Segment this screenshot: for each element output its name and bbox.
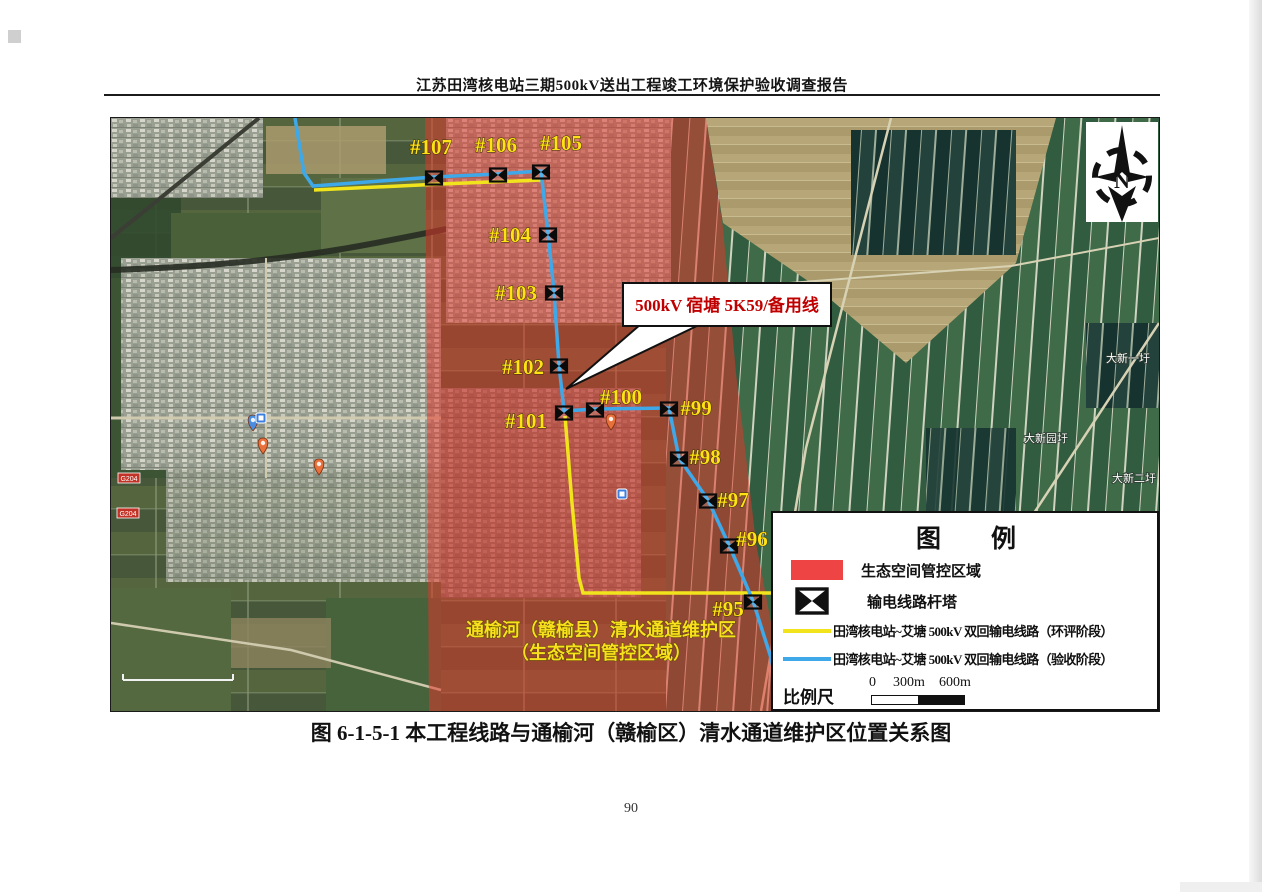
scan-artifact (8, 30, 21, 43)
figure-caption: 图 6-1-5-1 本工程线路与通榆河（赣榆区）清水通道维护区位置关系图 (0, 717, 1262, 747)
tower-label: #106 (475, 133, 517, 157)
header-rule (104, 94, 1160, 96)
tower-label: #107 (410, 135, 452, 159)
legend-item-tower: 输电线路杆塔 (781, 586, 1151, 617)
callout-text: 500kV 宿塘 5K59/备用线 (635, 295, 819, 315)
page-edge-shadow-bottom (1180, 882, 1262, 892)
tower-label: #96 (736, 527, 768, 551)
legend-item-route-acceptance: 田湾核电站~艾塘 500kV 双回输电线路（验收阶段） (781, 645, 1151, 673)
compass-n-letter: N (1114, 168, 1130, 193)
scale-tick-600: 600m (939, 675, 971, 691)
protection-zone-label-line1: 通榆河（赣榆县）清水通道维护区 (466, 619, 736, 640)
tower-label: #102 (502, 355, 544, 379)
map-figure: #107#106#105#104#103#102#101#100#99#98#9… (110, 117, 1160, 712)
map-scale: 比例尺 0 300m 600m (781, 673, 1151, 712)
report-page: 江苏田湾核电站三期500kV送出工程竣工环境保护验收调查报告 (0, 0, 1262, 892)
legend: 图 例 生态空间管控区域 输电线路杆塔 田湾核电站~艾塘 500kV 双回输电线… (771, 511, 1159, 711)
legend-item-control-area: 生态空间管控区域 (781, 555, 1151, 586)
page-edge-shadow (1249, 0, 1262, 892)
page-number: 90 (0, 801, 1262, 817)
tower-label: #100 (600, 385, 642, 409)
scale-bar (871, 695, 965, 705)
place-label: 大新园圩 (1024, 431, 1068, 445)
tower-label: #103 (495, 281, 537, 305)
place-label: 大新一圩 (1106, 351, 1150, 365)
compass-rose: N (1086, 122, 1158, 222)
legend-title: 图 例 (781, 519, 1151, 555)
tower-label: #99 (680, 396, 712, 420)
tower-legend-icon (795, 587, 829, 615)
tower-label: #97 (717, 488, 749, 512)
tower-label: #104 (489, 223, 532, 247)
tower-label: #98 (689, 445, 721, 469)
report-header: 江苏田湾核电站三期500kV送出工程竣工环境保护验收调查报告 (104, 74, 1160, 95)
blue-line-swatch (783, 657, 831, 661)
scale-tick-0: 0 (869, 675, 876, 691)
control-area-swatch (791, 560, 843, 580)
tower-label: #101 (505, 409, 547, 433)
scale-tick-300: 300m (893, 675, 925, 691)
road-shield-label: G204 (119, 511, 136, 518)
road-shield-label: G204 (120, 476, 137, 483)
north-arrow-icon: N (1086, 122, 1158, 222)
protection-zone-label-line2: （生态空间管控区域） (511, 642, 691, 663)
yellow-line-swatch (783, 629, 831, 633)
legend-item-route-eia: 田湾核电站~艾塘 500kV 双回输电线路（环评阶段） (781, 617, 1151, 645)
place-label: 大新二圩 (1112, 471, 1156, 485)
tower-label: #95 (712, 597, 744, 621)
tower-label: #105 (540, 131, 582, 155)
